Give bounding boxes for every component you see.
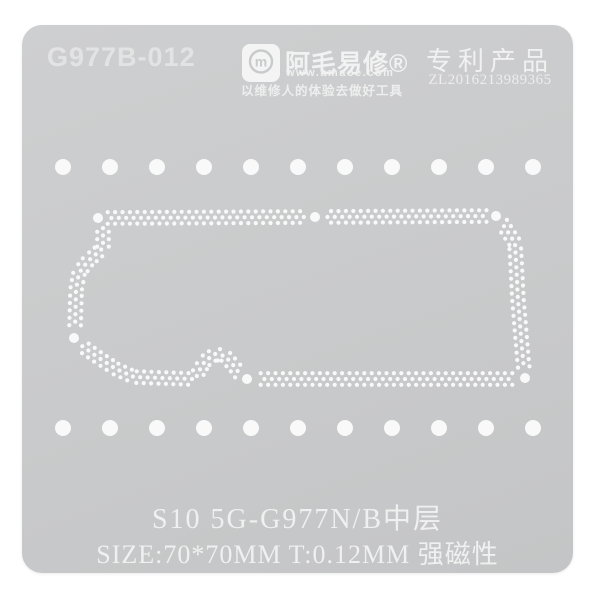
model-code-label: G977B-012 — [47, 42, 196, 73]
product-photo: G977B-012 m 阿毛易修® www.amaoe.com 以维修人的体验去… — [0, 0, 600, 600]
product-caption-model: S10 5G-G977N/B中层 — [22, 497, 573, 537]
product-caption-size: SIZE:70*70MM T:0.12MM 强磁性 — [22, 534, 573, 571]
logo-letter: m — [255, 54, 267, 70]
amaoe-logo-icon: m — [242, 44, 280, 82]
patent-number: ZL2016213989365 — [425, 72, 555, 89]
brand-slogan: 以维修人的体验去做好工具 — [241, 80, 403, 99]
brand-website: www.amaoe.com — [286, 67, 394, 79]
